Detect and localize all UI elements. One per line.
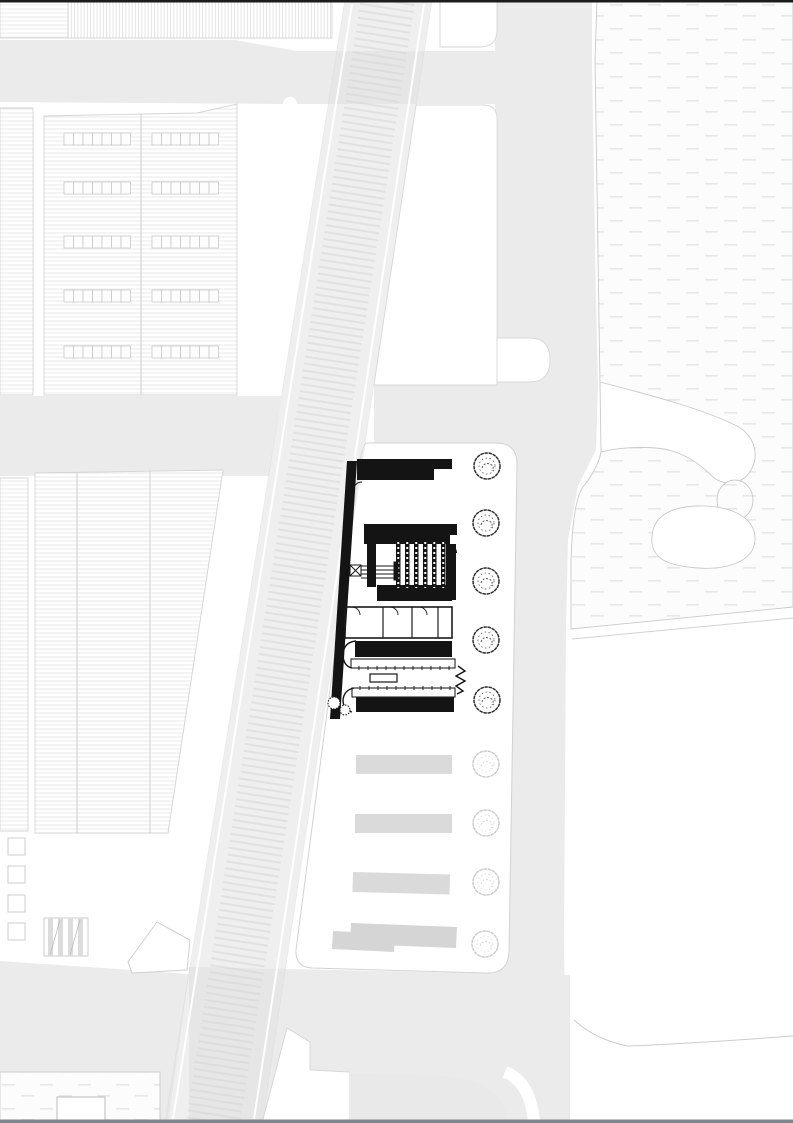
tree-icon <box>473 510 499 536</box>
louver-block <box>44 918 88 956</box>
skylight <box>181 236 191 248</box>
skylight <box>181 346 191 358</box>
skylight <box>171 182 181 194</box>
tree-icon <box>473 568 499 594</box>
wall-bar-2-step <box>450 524 457 535</box>
strip-hall-east <box>68 2 332 38</box>
road-mid-left-street <box>0 396 281 476</box>
tree-icon <box>474 453 500 479</box>
site-plan-page <box>0 0 793 1123</box>
skylight <box>190 133 200 145</box>
yard-square <box>8 838 25 855</box>
skylight <box>162 133 172 145</box>
planting-bar <box>356 755 452 774</box>
skylight <box>209 290 219 302</box>
skylight <box>102 290 112 302</box>
wall-bar-3 <box>355 641 452 657</box>
skylight <box>152 346 162 358</box>
table-outline <box>370 674 397 682</box>
skylight <box>190 290 200 302</box>
sheet-border-bottom <box>0 1120 793 1123</box>
skylight <box>93 133 103 145</box>
skylight <box>152 182 162 194</box>
meadow-pond <box>652 506 755 568</box>
skylight <box>200 133 210 145</box>
skylight <box>112 236 122 248</box>
skylight <box>121 290 131 302</box>
site-plan-canvas <box>0 0 793 1123</box>
skylight <box>74 290 84 302</box>
tree-icon <box>473 869 499 895</box>
skylight <box>200 346 210 358</box>
skylight <box>171 290 181 302</box>
skylight <box>83 182 93 194</box>
skylight <box>102 236 112 248</box>
skylight <box>74 133 84 145</box>
skylight <box>112 290 122 302</box>
block-north-of-road <box>440 0 497 47</box>
yard-square <box>8 866 25 883</box>
skylight <box>93 290 103 302</box>
skylight <box>152 290 162 302</box>
skylight <box>121 133 131 145</box>
tree-icon <box>473 751 499 777</box>
skylight <box>93 182 103 194</box>
kiosk-footprint <box>57 1097 105 1123</box>
skylight <box>93 346 103 358</box>
skylight <box>102 133 112 145</box>
skylight <box>209 133 219 145</box>
skylight <box>152 133 162 145</box>
skylight <box>200 236 210 248</box>
skylight <box>64 133 74 145</box>
skylight <box>102 182 112 194</box>
tree-icon <box>473 627 499 653</box>
skylight <box>64 182 74 194</box>
skylight <box>121 182 131 194</box>
skylight <box>181 182 191 194</box>
skylight <box>74 182 84 194</box>
skylight <box>64 236 74 248</box>
skylight <box>121 346 131 358</box>
skylight <box>83 236 93 248</box>
skylight <box>162 182 172 194</box>
skylight <box>209 236 219 248</box>
tree-icon <box>473 810 499 836</box>
skylight <box>171 133 181 145</box>
skylight <box>83 290 93 302</box>
skylight <box>162 346 172 358</box>
skylight <box>112 182 122 194</box>
skylight <box>200 182 210 194</box>
skylight <box>171 346 181 358</box>
strip-hall-west <box>0 2 68 38</box>
hall-west-annex <box>0 478 28 831</box>
skylight <box>64 346 74 358</box>
planting-bar <box>352 872 449 895</box>
skylight <box>93 236 103 248</box>
sheet-border-top <box>0 0 793 3</box>
skylight <box>83 133 93 145</box>
road-notch <box>497 338 550 382</box>
tree-icon <box>474 687 500 713</box>
skylight <box>200 290 210 302</box>
skylight <box>64 290 74 302</box>
skylight <box>181 133 191 145</box>
skylight <box>121 236 131 248</box>
skylight <box>74 236 84 248</box>
skylight <box>162 236 172 248</box>
planting-bar <box>332 931 395 952</box>
skylight <box>83 346 93 358</box>
skylight <box>102 346 112 358</box>
skylight <box>162 290 172 302</box>
planting-bar <box>355 814 452 833</box>
hall-northwest-annex <box>0 108 33 395</box>
skylight <box>209 182 219 194</box>
skylight <box>171 236 181 248</box>
north-strip-buildings <box>0 2 332 38</box>
skylight <box>112 346 122 358</box>
skylight <box>74 346 84 358</box>
road-plaza-north <box>374 378 497 443</box>
skylight <box>112 133 122 145</box>
skylight <box>209 346 219 358</box>
wall-bar-4 <box>356 697 454 712</box>
yard-square <box>8 923 25 940</box>
yard-square <box>8 895 25 912</box>
skylight <box>190 346 200 358</box>
skylight <box>190 182 200 194</box>
tree-icon <box>472 931 498 957</box>
skylight <box>152 236 162 248</box>
skylight <box>190 236 200 248</box>
skylight <box>181 290 191 302</box>
